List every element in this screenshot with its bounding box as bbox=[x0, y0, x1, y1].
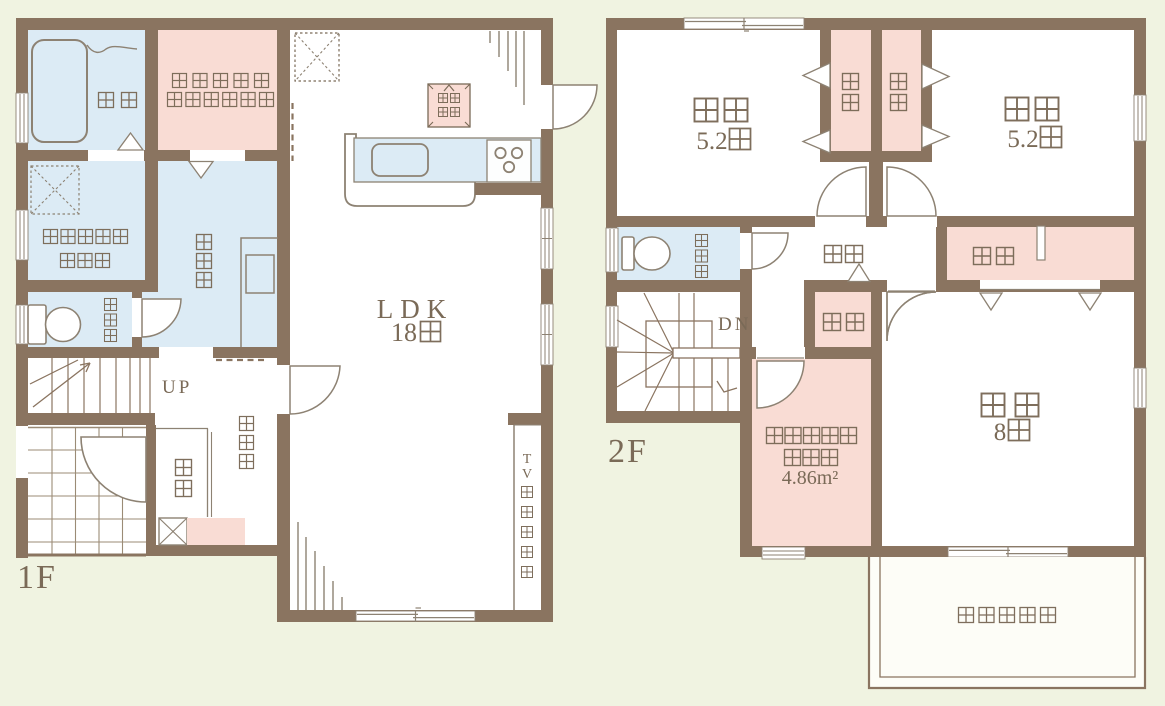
svg-text:4.86m²: 4.86m² bbox=[782, 467, 839, 489]
svg-text:1F: 1F bbox=[17, 559, 57, 596]
svg-text:18: 18 bbox=[391, 318, 417, 347]
svg-text:T: T bbox=[523, 452, 532, 467]
svg-text:V: V bbox=[522, 467, 532, 482]
svg-text:UP: UP bbox=[162, 377, 192, 398]
svg-text:5.2: 5.2 bbox=[1007, 126, 1038, 153]
svg-text:8: 8 bbox=[994, 419, 1007, 446]
svg-text:5.2: 5.2 bbox=[696, 128, 727, 155]
svg-text:DN: DN bbox=[718, 314, 751, 335]
svg-text:2F: 2F bbox=[608, 433, 648, 470]
